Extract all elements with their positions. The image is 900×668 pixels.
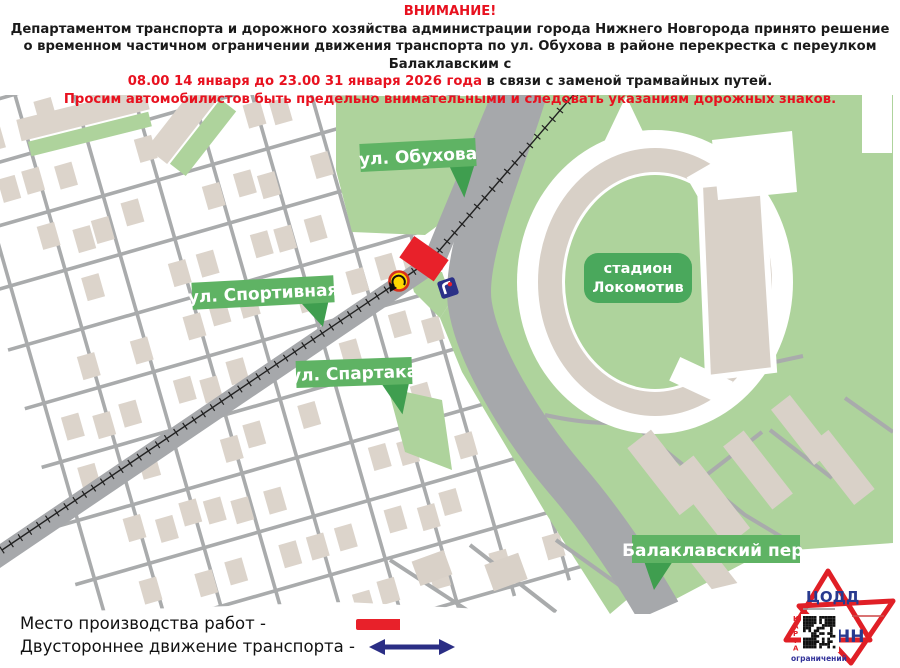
logo-city-text: НН [836,627,864,647]
qr-caption: ограничений [791,654,847,663]
header-line-1: Департаментом транспорта и дорожного хоз… [0,21,900,39]
logo-fineprint-line [803,608,835,610]
header-dates: 08.00 14 января до 23.00 31 января 2026 … [128,74,482,89]
codd-nn-logo: ЦОДД НН КАРТА ограничений [776,566,900,668]
attention-title: ВНИМАНИЕ! [0,3,900,21]
legend-two-way-row: Двустороннее движение транспорта - [20,635,459,658]
red-line [356,619,400,630]
header-reason: в связи с заменой трамвайных путей. [482,74,772,89]
svg-text:Локомотив: Локомотив [592,280,683,296]
double-arrow-icon [369,636,459,658]
svg-text:А: А [793,645,799,653]
svg-text:стадион: стадион [604,261,673,277]
work-site-symbol [280,611,400,637]
legend: Место производства работ - Двустороннее … [20,612,459,658]
road-works-notice: { "header": { "attention": "ВНИМАНИЕ!", … [0,0,900,668]
header-line-4: Просим автомобилистов быть предельно вни… [0,91,900,109]
header-line-3: 08.00 14 января до 23.00 31 января 2026 … [0,73,900,91]
legend-work-site-label: Место производства работ - [20,614,266,633]
logo-fineprint-line2 [852,615,884,617]
turn-sign [389,272,409,293]
svg-text:Балаклавский пер.: Балаклавский пер. [622,541,810,561]
header-line-2: о временном частичном ограничении движен… [0,38,900,73]
legend-two-way-label: Двустороннее движение транспорта - [20,637,355,656]
legend-work-site-row: Место производства работ - [20,612,459,635]
qr-side-text: КАРТА [793,615,799,653]
logo-org-text: ЦОДД [806,588,859,606]
notice-header: ВНИМАНИЕ! Департаментом транспорта и дор… [0,3,900,109]
stadium-label: стадион Локомотив [584,253,692,303]
